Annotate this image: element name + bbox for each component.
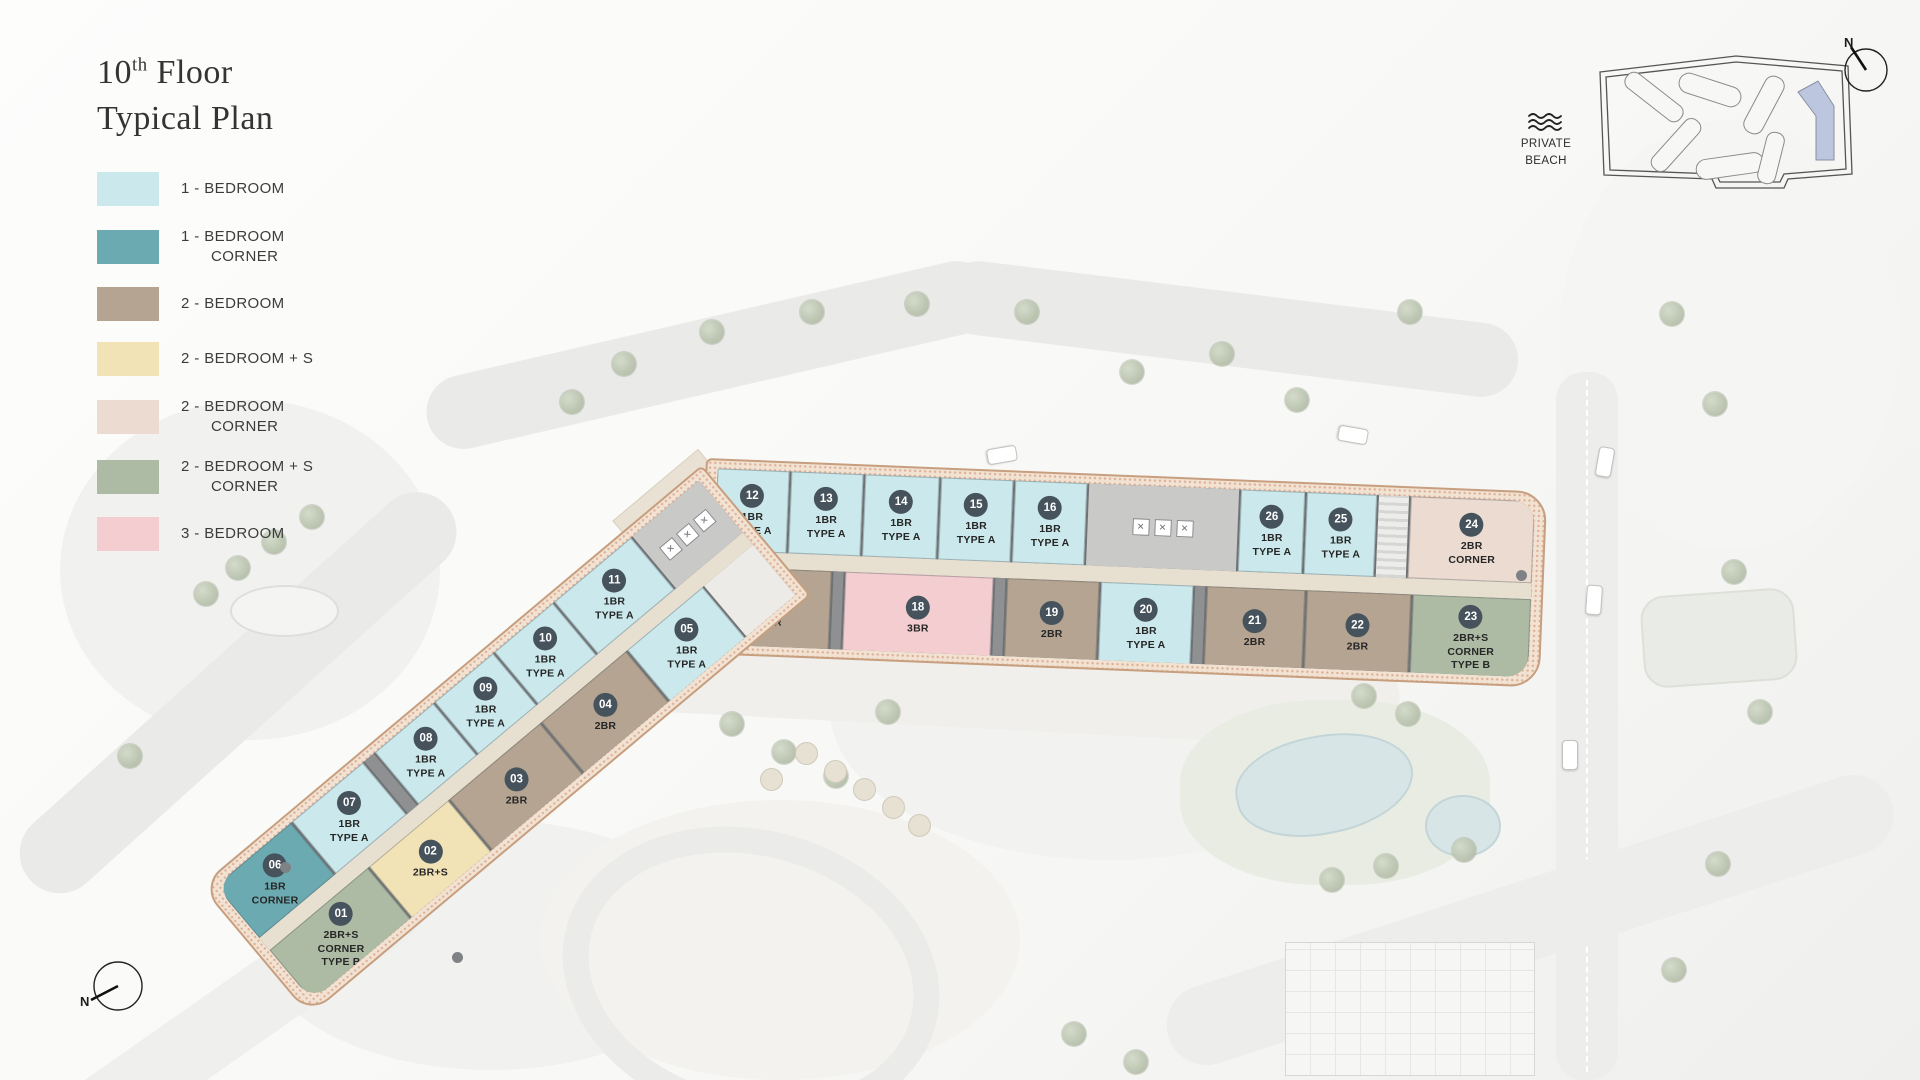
unit-number-badge: 02 [418, 840, 442, 864]
site-road [938, 257, 1523, 401]
tree-icon [118, 744, 142, 768]
legend-swatch [97, 460, 159, 494]
tree-icon [1396, 702, 1420, 726]
tree-icon [1285, 388, 1309, 412]
unit-number-badge: 03 [505, 768, 529, 792]
site-road [1556, 372, 1618, 1080]
unit-label: 032BR [505, 768, 529, 808]
unit-number-badge: 25 [1328, 508, 1352, 532]
terrace-dot [1516, 570, 1527, 581]
unit-label: 051BRTYPE A [667, 618, 706, 671]
car-icon [1562, 740, 1578, 770]
elevator-icon: ✕ [692, 508, 716, 532]
unit-number-badge: 01 [328, 902, 352, 926]
tree-icon [1352, 684, 1376, 708]
title-line-1: 10th Floor [97, 50, 273, 96]
tree-icon [1015, 300, 1039, 324]
car-icon [1337, 425, 1369, 446]
north-label: N [80, 994, 89, 1009]
beach-umbrella-icon [824, 760, 847, 783]
unit-label: 042BR [594, 693, 618, 733]
tree-icon [1398, 300, 1422, 324]
legend-swatch [97, 230, 159, 264]
unit-16[interactable]: 161BRTYPE A [1012, 480, 1087, 565]
unit-25[interactable]: 251BRTYPE A [1304, 492, 1377, 577]
tree-icon [700, 320, 724, 344]
tree-icon [876, 700, 900, 724]
legend-item: 2 - BEDROOMCORNER [97, 397, 313, 436]
legend-swatch [97, 287, 159, 321]
unit-number-badge: 12 [740, 484, 764, 508]
shaft [1192, 586, 1205, 668]
compass-north-top-right: N [1830, 34, 1894, 103]
unit-15[interactable]: 151BRTYPE A [938, 477, 1013, 562]
tree-icon [1722, 560, 1746, 584]
unit-label: 151BRTYPE A [956, 493, 995, 546]
tree-icon [800, 300, 824, 324]
elevator-icon: ✕ [1132, 518, 1150, 536]
unit-label: 261BRTYPE A [1252, 505, 1291, 558]
unit-number-badge: 14 [889, 490, 913, 514]
key-plan-building [1695, 151, 1765, 180]
shaft [830, 571, 843, 653]
unit-number-badge: 05 [675, 618, 699, 642]
wing-interior: 121BRTYPE A131BRTYPE A141BRTYPE A151BRTY… [711, 468, 1535, 677]
unit-label: 212BR [1243, 609, 1267, 649]
tree-icon [1662, 958, 1686, 982]
car-icon [986, 445, 1018, 466]
elevator-icon: ✕ [1154, 519, 1172, 537]
terrace-dot [280, 862, 291, 873]
tree-icon [1660, 302, 1684, 326]
terrace-dot [452, 952, 463, 963]
legend-label: 2 - BEDROOM + SCORNER [181, 457, 313, 496]
key-plan-building [1741, 73, 1788, 137]
unit-label: 242BRCORNER [1448, 513, 1495, 566]
beach-umbrella-icon [853, 778, 876, 801]
private-beach-text-line1: PRIVATE [1504, 136, 1588, 153]
beach-umbrella-icon [795, 742, 818, 765]
key-plan-building [1676, 71, 1743, 110]
legend-item: 1 - BEDROOM [97, 172, 313, 206]
unit-number-badge: 10 [533, 627, 557, 651]
unit-20[interactable]: 201BRTYPE A [1098, 582, 1193, 668]
elevator-icon: ✕ [1176, 519, 1194, 537]
unit-label: 022BR+S [413, 840, 448, 880]
car-icon [1585, 584, 1603, 615]
unit-number-badge: 09 [474, 677, 498, 701]
tree-icon [1748, 700, 1772, 724]
unit-label: 071BRTYPE A [330, 792, 369, 845]
key-plan [1586, 48, 1866, 213]
unit-number-badge: 24 [1459, 513, 1483, 537]
elevator-core: ✕✕✕ [1086, 483, 1239, 571]
tree-icon [772, 740, 796, 764]
unit-label: 012BR+SCORNERTYPE B [317, 902, 364, 969]
legend: 1 - BEDROOM1 - BEDROOMCORNER2 - BEDROOM2… [97, 172, 313, 551]
tree-icon [1706, 852, 1730, 876]
legend-label: 2 - BEDROOM + S [181, 349, 313, 369]
tree-icon [1374, 854, 1398, 878]
unit-label: 081BRTYPE A [407, 727, 446, 780]
unit-18[interactable]: 183BR [842, 572, 993, 660]
beach-umbrella-icon [882, 796, 905, 819]
unit-number-badge: 16 [1038, 496, 1062, 520]
unit-26[interactable]: 261BRTYPE A [1238, 490, 1305, 575]
unit-14[interactable]: 141BRTYPE A [862, 474, 939, 559]
stairs [1376, 495, 1409, 578]
unit-label: 111BRTYPE A [595, 569, 634, 622]
tree-icon [1120, 360, 1144, 384]
legend-label: 3 - BEDROOM [181, 524, 285, 544]
unit-24[interactable]: 242BRCORNER [1408, 496, 1535, 583]
tree-icon [1703, 392, 1727, 416]
beach-umbrella-icon [908, 814, 931, 837]
beach-umbrella-icon [760, 768, 783, 791]
legend-swatch [97, 172, 159, 206]
unit-label: 251BRTYPE A [1321, 508, 1360, 561]
legend-item: 2 - BEDROOM + SCORNER [97, 457, 313, 496]
tree-icon [1210, 342, 1234, 366]
building-wing-right: 121BRTYPE A131BRTYPE A141BRTYPE A151BRTY… [698, 458, 1547, 688]
elevator-icon: ✕ [659, 537, 683, 561]
unit-label: 091BRTYPE A [466, 677, 505, 730]
elevator-icon: ✕ [676, 522, 700, 546]
legend-label: 1 - BEDROOM [181, 179, 285, 199]
tree-icon [194, 582, 218, 606]
road-centerline [1586, 380, 1588, 1072]
unit-number-badge: 22 [1345, 613, 1369, 637]
legend-swatch [97, 517, 159, 551]
compass-north-bottom-left: N [78, 946, 154, 1027]
unit-number-badge: 21 [1243, 609, 1267, 633]
page-title: 10th Floor Typical Plan [97, 50, 273, 142]
unit-number-badge: 15 [964, 493, 988, 517]
legend-swatch [97, 342, 159, 376]
tree-icon [1320, 868, 1344, 892]
unit-number-badge: 07 [337, 792, 361, 816]
site-road [419, 254, 1001, 457]
key-plan-building [1622, 69, 1687, 125]
unit-label: 101BRTYPE A [526, 627, 565, 680]
unit-23[interactable]: 232BR+SCORNERTYPE B [1410, 594, 1531, 677]
unit-number-badge: 11 [602, 569, 626, 593]
unit-number-badge: 23 [1458, 604, 1482, 628]
unit-13[interactable]: 131BRTYPE A [788, 471, 863, 556]
tree-icon [1062, 1022, 1086, 1046]
tree-icon [560, 390, 584, 414]
key-plan-building-highlighted [1798, 81, 1834, 160]
unit-number-badge: 13 [814, 487, 838, 511]
floor-plan-canvas: 121BRTYPE A131BRTYPE A141BRTYPE A151BRTY… [0, 0, 1920, 1080]
neighbor-building-footprint [1285, 942, 1535, 1076]
tree-icon [612, 352, 636, 376]
title-line-2: Typical Plan [97, 96, 273, 142]
unit-number-badge: 04 [594, 693, 618, 717]
unit-label: 201BRTYPE A [1126, 598, 1165, 651]
unit-number-badge: 18 [906, 596, 930, 620]
unit-label: 131BRTYPE A [806, 487, 845, 540]
tree-icon [905, 292, 929, 316]
legend-label: 2 - BEDROOMCORNER [181, 397, 285, 436]
legend-item: 3 - BEDROOM [97, 517, 313, 551]
unit-number-badge: 19 [1040, 601, 1064, 625]
unit-22[interactable]: 222BR [1304, 590, 1411, 676]
key-plan-building [1648, 115, 1704, 175]
tree-icon [226, 556, 250, 580]
private-beach-text-line2: BEACH [1504, 153, 1588, 170]
shaft [992, 578, 1005, 660]
legend-item: 2 - BEDROOM [97, 287, 313, 321]
legend-item: 2 - BEDROOM + S [97, 342, 313, 376]
unit-number-badge: 08 [414, 727, 438, 751]
unit-label: 141BRTYPE A [881, 490, 920, 543]
unit-19[interactable]: 192BR [1004, 578, 1099, 664]
private-beach-label: PRIVATE BEACH [1504, 112, 1588, 171]
unit-number-badge: 26 [1259, 505, 1283, 529]
waves-icon [1527, 112, 1565, 134]
unit-label: 192BR [1040, 601, 1064, 641]
legend-label: 2 - BEDROOM [181, 294, 285, 314]
legend-swatch [97, 400, 159, 434]
legend-item: 1 - BEDROOMCORNER [97, 227, 313, 266]
unit-label: 183BR [906, 596, 930, 636]
unit-label: 222BR [1345, 613, 1369, 653]
unit-label: 232BR+SCORNERTYPE B [1447, 604, 1494, 671]
unit-21[interactable]: 212BR [1204, 586, 1305, 672]
plaza [230, 585, 339, 637]
legend-label: 1 - BEDROOMCORNER [181, 227, 285, 266]
tree-icon [1124, 1050, 1148, 1074]
tree-icon [720, 712, 744, 736]
tree-icon [1452, 838, 1476, 862]
unit-number-badge: 20 [1134, 598, 1158, 622]
unit-label: 061BRCORNER [252, 854, 299, 907]
sport-court [1639, 587, 1799, 690]
unit-label: 161BRTYPE A [1030, 496, 1069, 549]
